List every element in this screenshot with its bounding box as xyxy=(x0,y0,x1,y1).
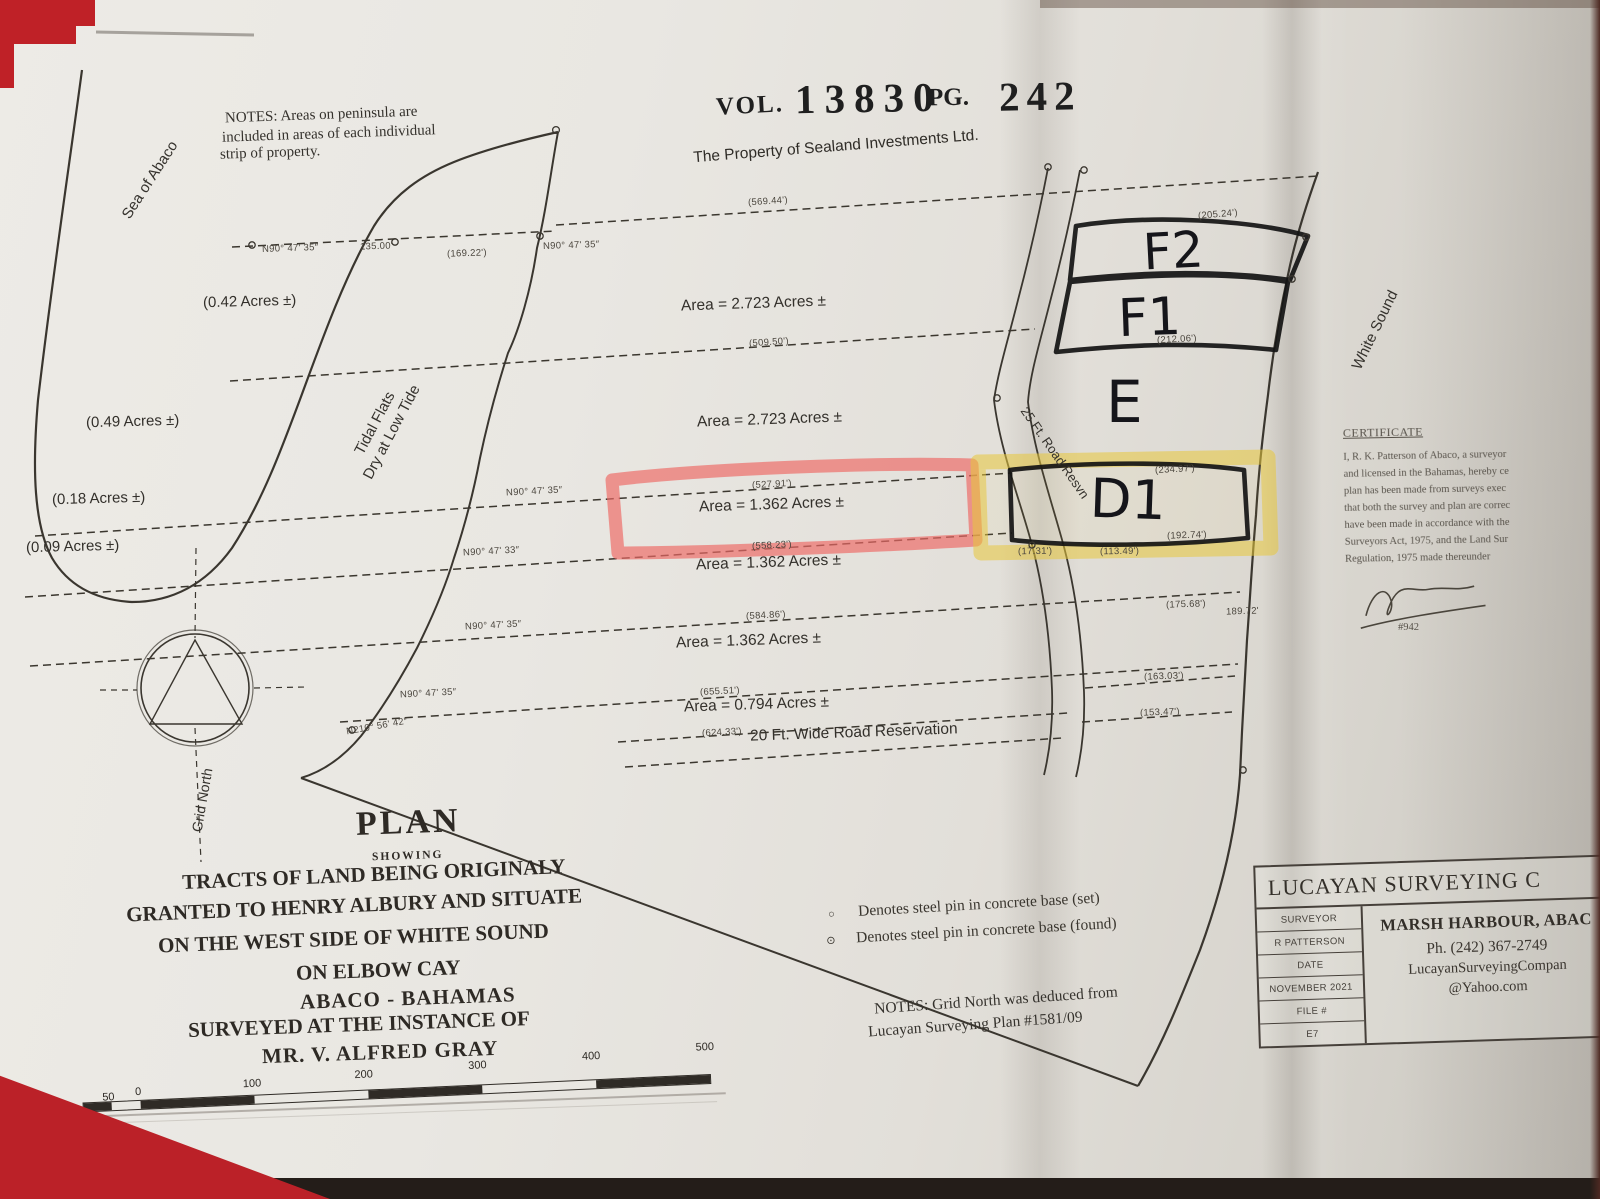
tidal-shoreline xyxy=(301,132,558,778)
page-stamp-label: PG. xyxy=(928,84,969,113)
dim-624: (624.33') xyxy=(702,726,742,739)
firm-file-value: E7 xyxy=(1260,1021,1365,1046)
notes-peninsula-line3: strip of property. xyxy=(220,143,321,163)
volume-stamp-label: VOL. xyxy=(715,90,784,122)
certificate-title: CERTIFICATE xyxy=(1343,422,1553,441)
lot-label-d1: D1 xyxy=(1089,467,1167,533)
dim-189: 189.72' xyxy=(1226,605,1259,617)
dim-113: (113.49') xyxy=(1100,546,1139,558)
lot-label-f1: F1 xyxy=(1117,287,1182,349)
dim-655: (655.51') xyxy=(700,685,740,698)
pin-set-icon: ○ xyxy=(828,908,843,921)
firm-surveyor-label: SURVEYOR xyxy=(1257,906,1362,932)
scale-label-200: 200 xyxy=(354,1068,373,1081)
dim-163: (163.03') xyxy=(1144,670,1184,682)
plan-title: PLAN xyxy=(355,802,461,844)
surveyor-reg-number: #942 xyxy=(1398,622,1419,633)
surveyor-title-block: LUCAYAN SURVEYING C SURVEYOR R PATTERSON… xyxy=(1253,854,1600,1048)
dim-17: (17.31') xyxy=(1018,546,1053,558)
volume-stamp-number: 13830 xyxy=(795,73,943,124)
page-stamp-number: 242 xyxy=(999,71,1082,120)
scale-label-400: 400 xyxy=(582,1050,601,1063)
bearing-top-1: N90° 47' 35″ xyxy=(262,242,319,255)
dim-584: (584.86') xyxy=(746,609,786,622)
bearing-top-2: N90° 47' 35″ xyxy=(543,239,600,252)
dim-558: (558.23') xyxy=(752,539,792,552)
scanned-survey-plan: VOL. 13830 PG. 242 The Property of Seala… xyxy=(0,0,1600,1199)
dim-135: 135.00' xyxy=(360,240,393,252)
red-edge-sliver xyxy=(0,26,14,88)
pin-found-icon: ⊙ xyxy=(826,933,841,947)
dim-175: (175.68') xyxy=(1166,598,1206,610)
dim-527: (527.91') xyxy=(752,478,792,491)
stray-pen-line xyxy=(96,32,254,35)
dim-153: (153.47') xyxy=(1140,706,1180,718)
peninsula-area-1: (0.42 Acres ±) xyxy=(203,292,297,311)
peninsula-area-3: (0.18 Acres ±) xyxy=(52,489,146,508)
firm-info-column: SURVEYOR R PATTERSON DATE NOVEMBER 2021 … xyxy=(1257,906,1367,1046)
dim-192: (192.74') xyxy=(1167,529,1207,541)
scale-label-300: 300 xyxy=(468,1059,487,1072)
firm-date-label: DATE xyxy=(1258,952,1363,978)
signature xyxy=(1358,583,1486,628)
scale-label-100: 100 xyxy=(243,1077,262,1090)
firm-surveyor-value: R PATTERSON xyxy=(1257,929,1362,955)
firm-contact-column: MARSH HARBOUR, ABAC Ph. (242) 367-2749 L… xyxy=(1363,898,1600,1043)
firm-address: MARSH HARBOUR, ABAC xyxy=(1363,908,1600,936)
peninsula-area-4: (0.09 Acres ±) xyxy=(26,537,120,556)
dark-bottom-strip xyxy=(140,1178,1600,1199)
peninsula-area-2: (0.49 Acres ±) xyxy=(86,412,180,431)
scale-label-0: 0 xyxy=(135,1086,142,1098)
firm-file-label: FILE # xyxy=(1259,998,1364,1024)
scale-label-500: 500 xyxy=(695,1041,714,1054)
firm-date-value: NOVEMBER 2021 xyxy=(1259,975,1364,1001)
lot-label-f2: F2 xyxy=(1142,220,1206,281)
dim-169: (169.22') xyxy=(447,247,487,259)
dark-right-edge xyxy=(1590,0,1600,1199)
certificate-block: CERTIFICATE I, R. K. Patterson of Abaco,… xyxy=(1343,422,1555,568)
scale-bar-segments xyxy=(83,1074,712,1113)
lot-label-e: E xyxy=(1106,368,1143,436)
